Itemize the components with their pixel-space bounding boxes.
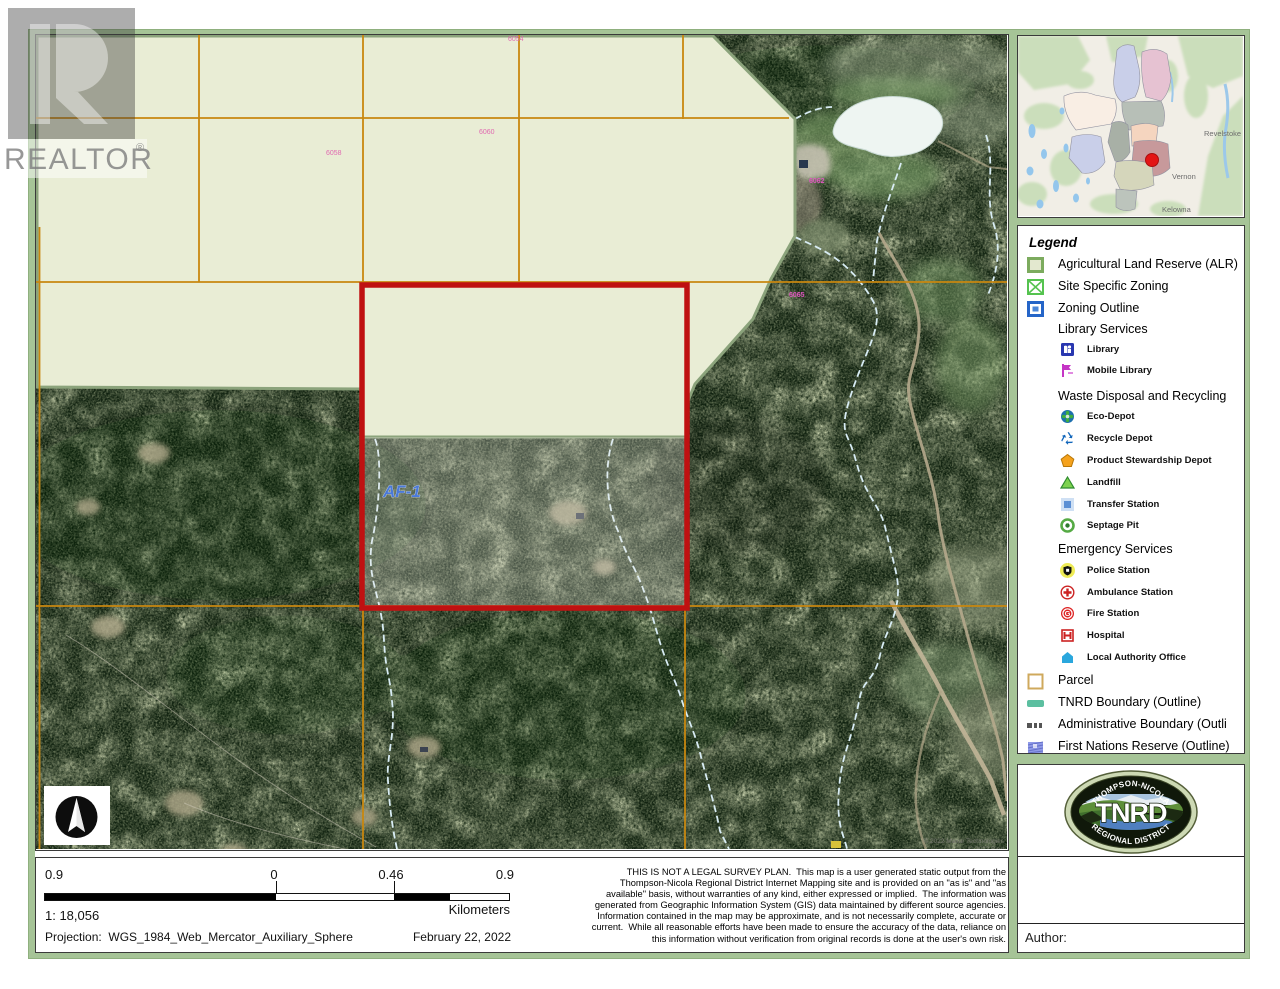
svg-text:AF-1: AF-1 bbox=[382, 482, 421, 501]
svg-text:6054: 6054 bbox=[508, 36, 524, 43]
svg-text:6065: 6065 bbox=[789, 292, 805, 299]
svg-text:© 2022 Maxar Technologies: © 2022 Maxar Technologies bbox=[923, 837, 1004, 845]
svg-text:G: G bbox=[1065, 609, 1071, 618]
svg-text:TNRD: TNRD bbox=[1096, 798, 1167, 828]
svg-text:6058: 6058 bbox=[326, 150, 342, 157]
svg-text:Kelowna: Kelowna bbox=[1162, 205, 1192, 214]
svg-text:6062: 6062 bbox=[809, 178, 825, 185]
svg-text:Vernon: Vernon bbox=[1172, 172, 1196, 181]
svg-text:6060: 6060 bbox=[479, 129, 495, 136]
svg-text:Revelstoke: Revelstoke bbox=[1204, 129, 1241, 138]
svg-text:®: ® bbox=[136, 142, 144, 154]
svg-text:REALTOR: REALTOR bbox=[4, 143, 153, 176]
svg-text:© 2022 Bing: © 2022 Bing bbox=[968, 845, 1004, 849]
